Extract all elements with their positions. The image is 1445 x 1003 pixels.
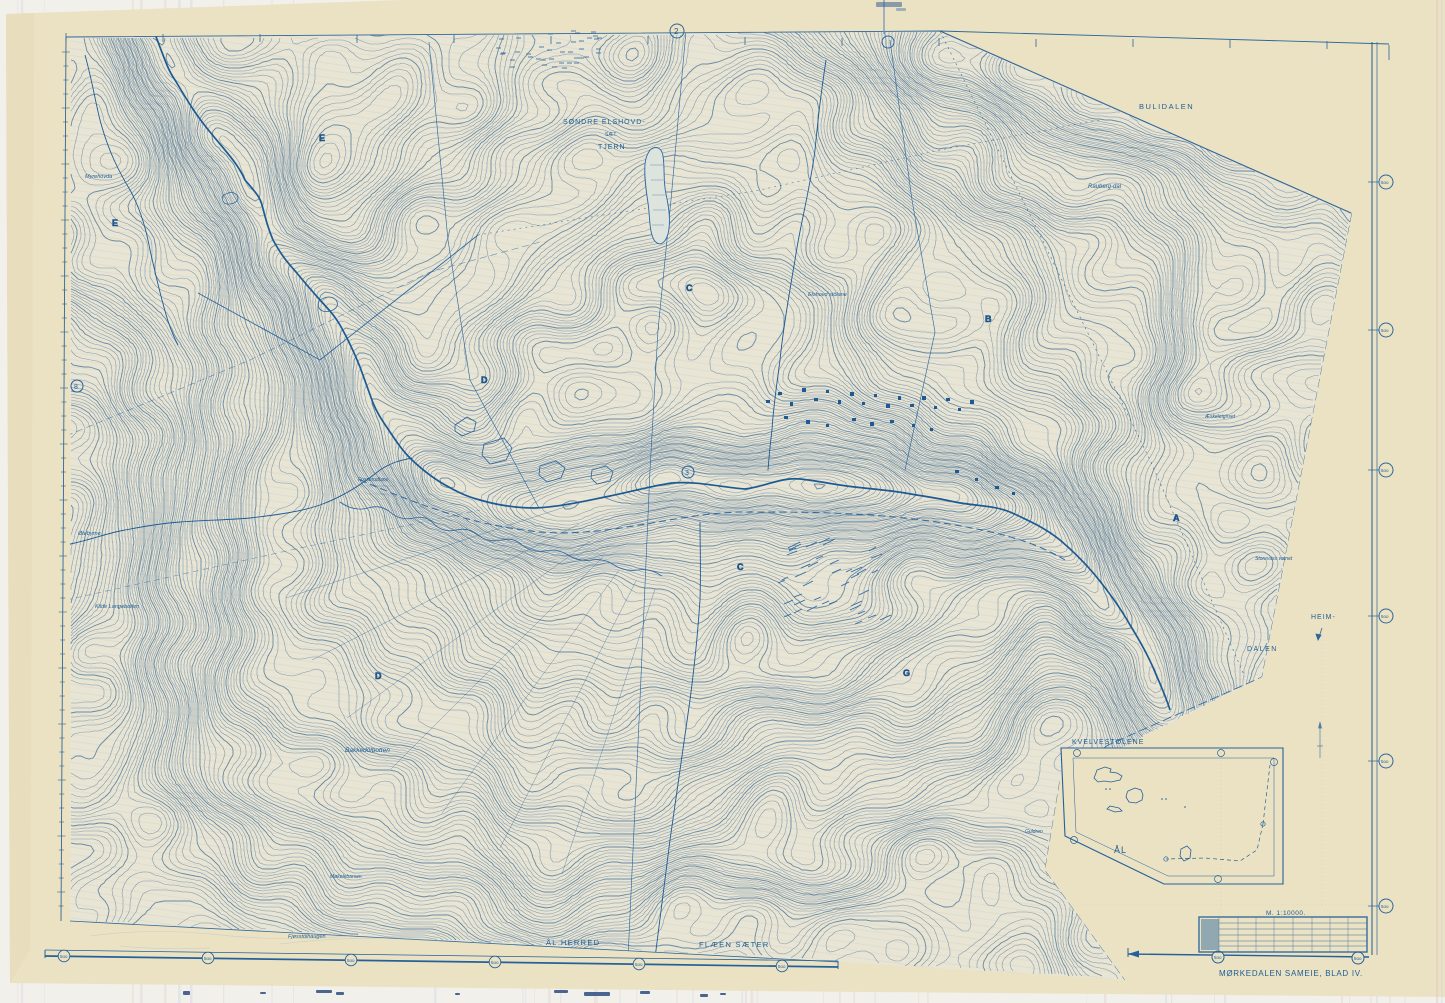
svg-text:5oo: 5oo: [1381, 614, 1389, 619]
svg-text:KVELVESTØLENE: KVELVESTØLENE: [1072, 739, 1144, 746]
svg-text:Øtebyrne: Øtebyrne: [77, 531, 101, 537]
svg-text:DALEN: DALEN: [1247, 646, 1278, 653]
svg-text:5oo: 5oo: [1381, 468, 1389, 473]
svg-text:3: 3: [685, 470, 689, 477]
svg-text:D: D: [481, 375, 488, 385]
svg-text:HEIM-: HEIM-: [1311, 614, 1336, 621]
svg-text:TJERN: TJERN: [598, 144, 626, 151]
svg-text:G: G: [903, 668, 910, 678]
svg-text:B: B: [985, 314, 992, 324]
svg-text:5oo: 5oo: [1381, 759, 1389, 764]
svg-text:5oo: 5oo: [1381, 904, 1389, 909]
svg-text:ÅL HERRED: ÅL HERRED: [546, 938, 600, 947]
svg-text:C: C: [737, 562, 744, 572]
svg-text:M. 1:10000.: M. 1:10000.: [1266, 910, 1306, 917]
svg-text:5oo: 5oo: [1381, 180, 1389, 185]
svg-text:E: E: [319, 133, 325, 143]
svg-text:5oo: 5oo: [60, 954, 68, 959]
svg-text:8: 8: [74, 384, 78, 391]
svg-text:5oo: 5oo: [1354, 956, 1362, 961]
svg-text:5oo: 5oo: [347, 958, 355, 963]
svg-text:5oo: 5oo: [204, 956, 212, 961]
svg-text:Æskeleignset: Æskeleignset: [1204, 414, 1236, 420]
svg-text:C: C: [686, 283, 693, 293]
svg-text:E: E: [112, 218, 118, 228]
svg-text:Storevass vatnet: Storevass vatnet: [1255, 556, 1293, 562]
svg-text:Fosserudlane: Fosserudlane: [358, 477, 389, 483]
svg-text:5oo: 5oo: [1214, 955, 1222, 960]
svg-text:2: 2: [674, 27, 679, 36]
svg-text:SØNDRE ELSHOVD-: SØNDRE ELSHOVD-: [563, 119, 646, 126]
svg-text:D: D: [375, 671, 382, 681]
svg-text:FLÆEN SÆTER: FLÆEN SÆTER: [699, 940, 770, 949]
svg-text:BULIDALEN: BULIDALEN: [1139, 102, 1194, 111]
svg-text:ÅL: ÅL: [1114, 845, 1127, 855]
svg-text:MØRKEDALEN SAMEIE, BLAD IV.: MØRKEDALEN SAMEIE, BLAD IV.: [1219, 969, 1363, 978]
svg-text:SÆT.: SÆT.: [605, 132, 617, 138]
svg-text:Myrehovda: Myrehovda: [85, 174, 112, 180]
svg-text:Fjøsstölhaugen: Fjøsstölhaugen: [288, 934, 326, 940]
svg-text:Rauberg-dal: Rauberg-dal: [1088, 184, 1122, 190]
svg-text:Kilde Langebotten: Kilde Langebotten: [95, 604, 139, 610]
svg-text:Guldren: Guldren: [1025, 829, 1043, 835]
svg-text:A: A: [1173, 513, 1180, 523]
svg-text:5oo: 5oo: [778, 964, 786, 969]
svg-text:Møkelebarsen: Møkelebarsen: [330, 874, 362, 880]
svg-text:5oo: 5oo: [491, 960, 499, 965]
svg-text:Bakkedölbotten: Bakkedölbotten: [345, 747, 390, 754]
svg-text:5oo: 5oo: [635, 962, 643, 967]
svg-text:Elshovd stölane: Elshovd stölane: [808, 292, 847, 298]
svg-text:5oo: 5oo: [1381, 328, 1389, 333]
